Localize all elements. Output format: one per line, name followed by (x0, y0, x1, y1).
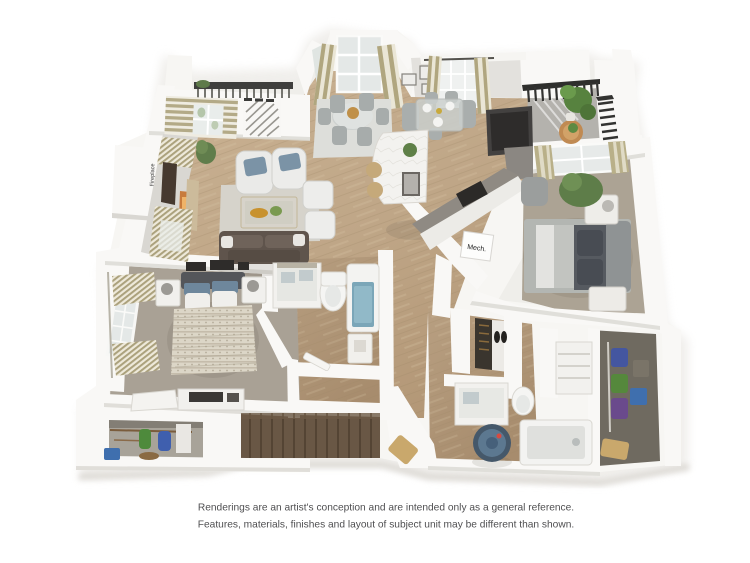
svg-text:Fireplace: Fireplace (150, 163, 157, 186)
svg-text:Features, materials, finishes: Features, materials, finishes and layout… (198, 520, 574, 531)
svg-text:Renderings are an artist's con: Renderings are an artist's conception an… (198, 503, 574, 514)
